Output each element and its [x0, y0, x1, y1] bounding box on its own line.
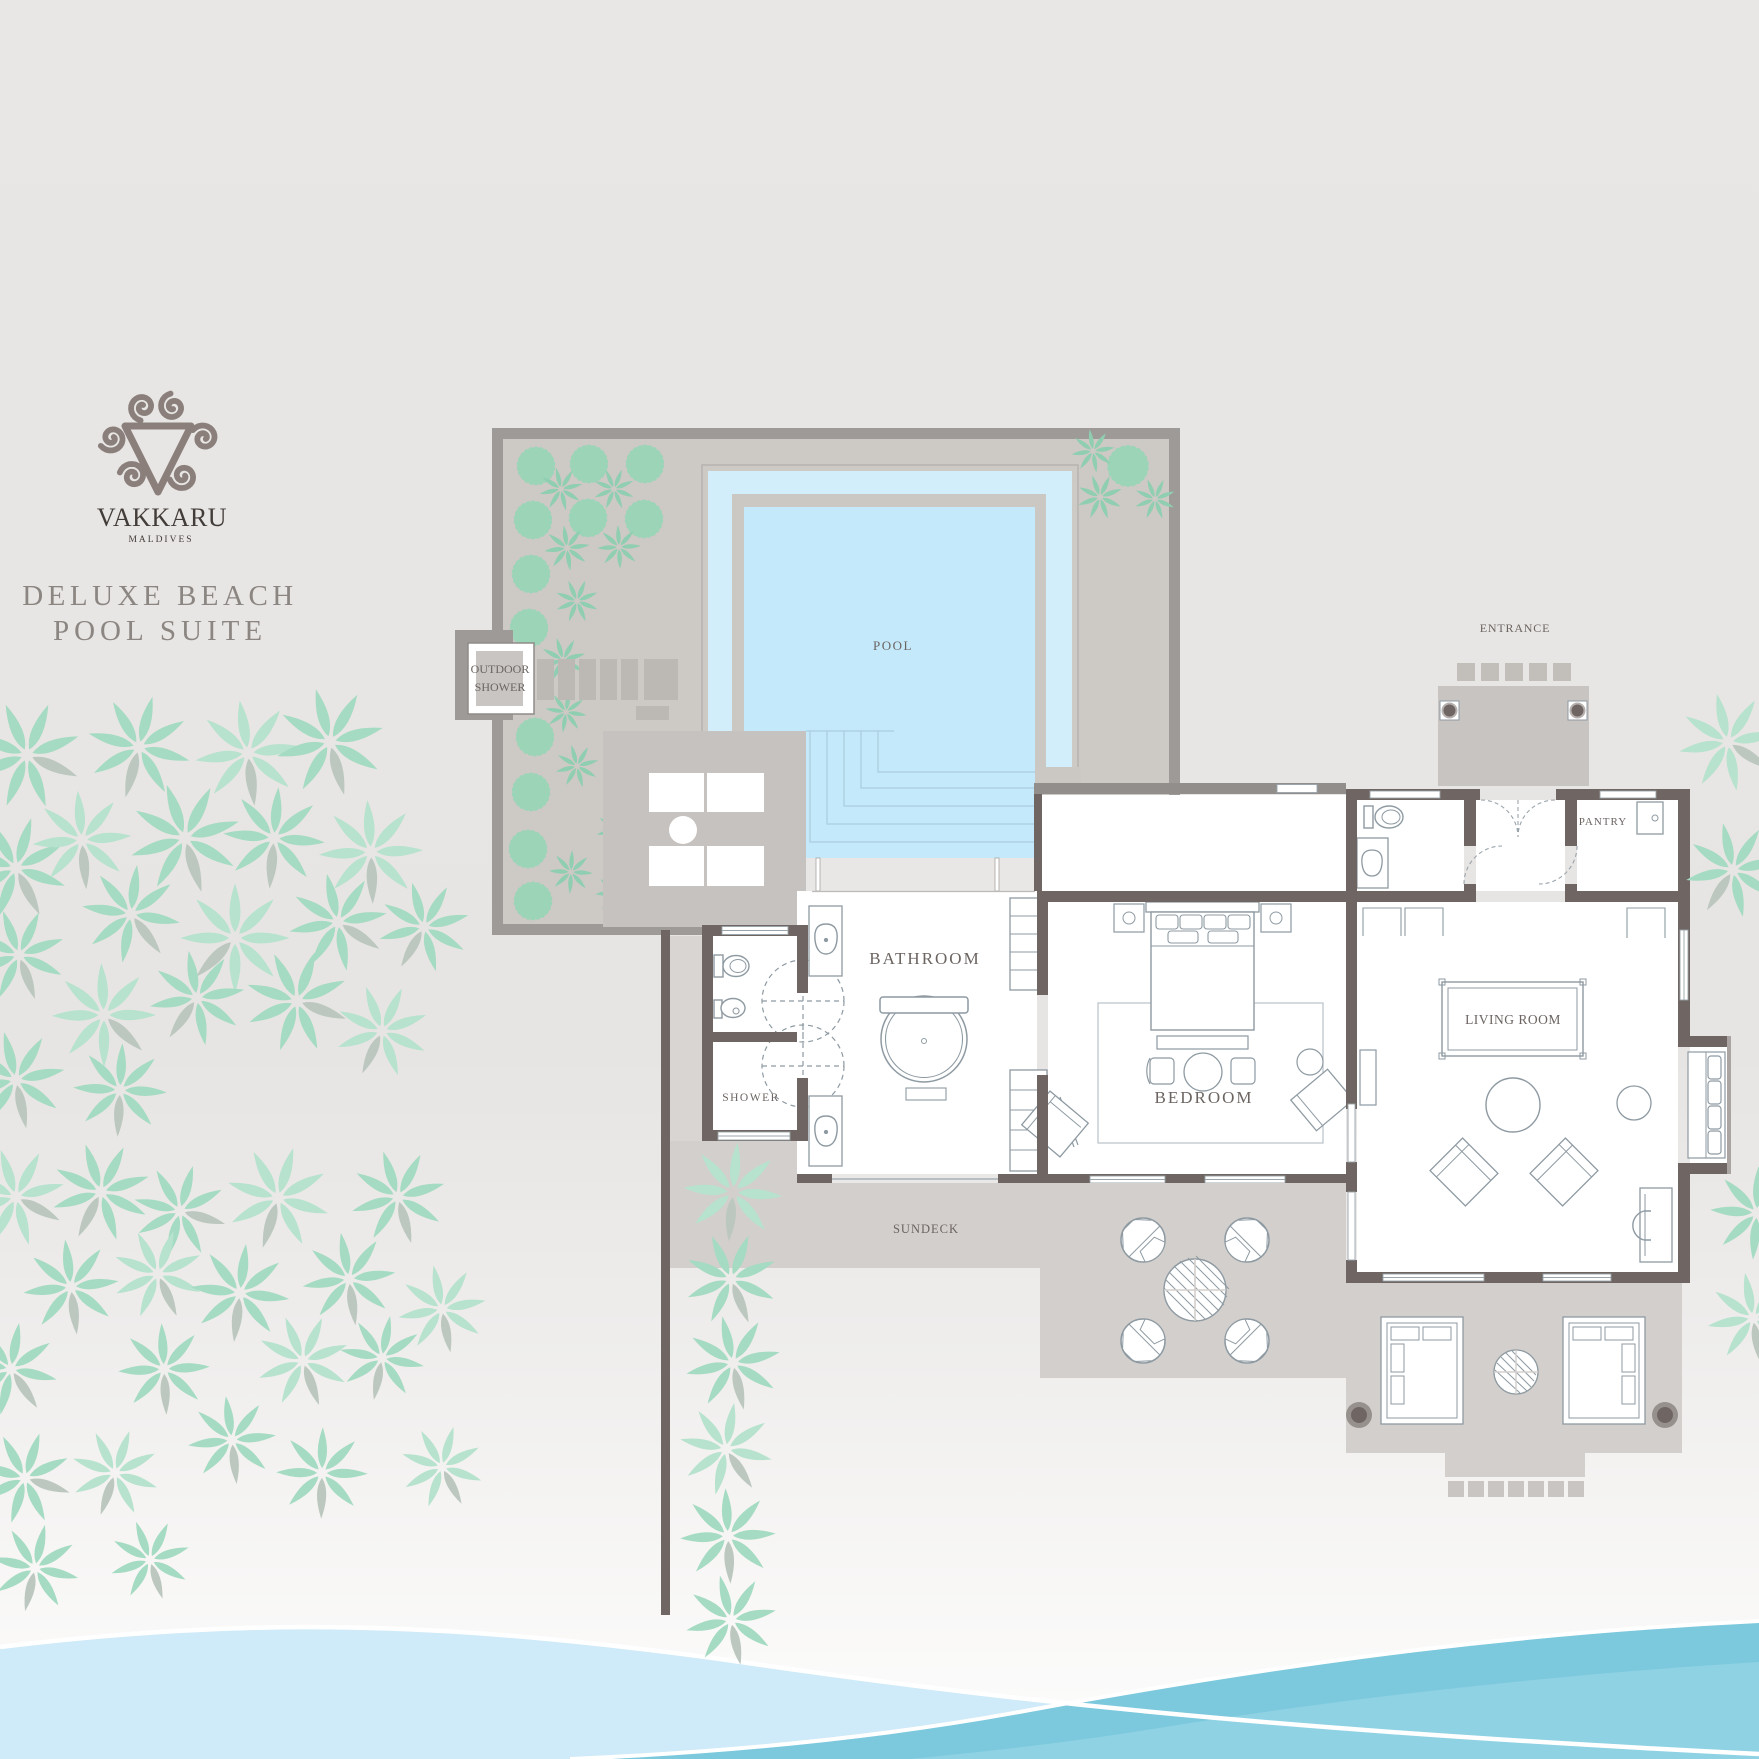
svg-text:DELUXE BEACH: DELUXE BEACH — [22, 580, 298, 612]
svg-text:SUNDECK: SUNDECK — [893, 1222, 959, 1236]
svg-text:OUTDOOR: OUTDOOR — [471, 662, 530, 676]
svg-text:SHOWER: SHOWER — [722, 1092, 780, 1104]
svg-text:ENTRANCE: ENTRANCE — [1480, 621, 1550, 635]
svg-text:POOL: POOL — [873, 638, 913, 653]
svg-text:POOL SUITE: POOL SUITE — [53, 615, 267, 647]
svg-text:VAKKARU: VAKKARU — [97, 503, 227, 532]
svg-text:SHOWER: SHOWER — [475, 680, 526, 694]
svg-text:LIVING ROOM: LIVING ROOM — [1465, 1012, 1561, 1027]
svg-text:PANTRY: PANTRY — [1579, 816, 1627, 828]
svg-text:MALDIVES: MALDIVES — [128, 535, 193, 545]
svg-text:BATHROOM: BATHROOM — [869, 949, 980, 968]
svg-text:BEDROOM: BEDROOM — [1154, 1088, 1253, 1107]
